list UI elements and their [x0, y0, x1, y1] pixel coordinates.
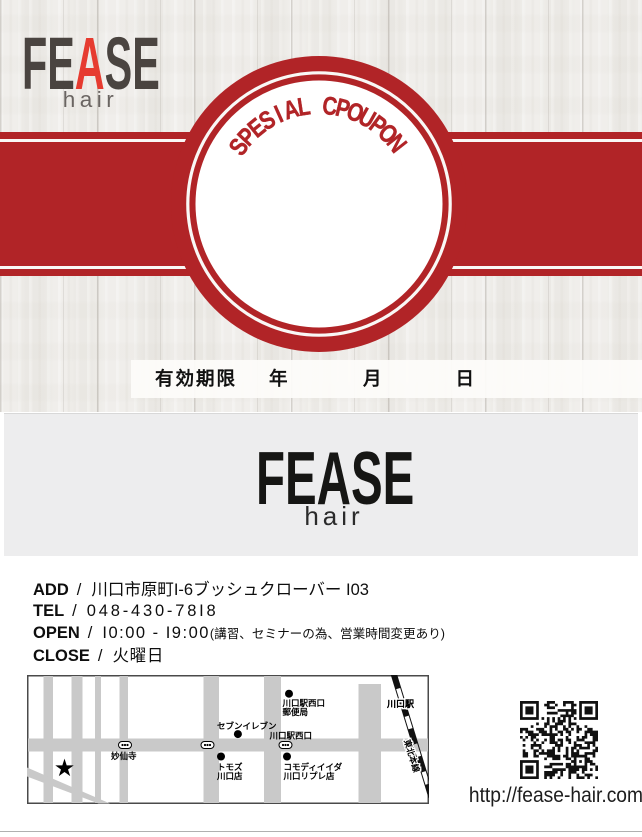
svg-text:川口リプレ店: 川口リプレ店 — [282, 771, 335, 781]
svg-text:郵便局: 郵便局 — [282, 707, 308, 717]
svg-text:★: ★ — [53, 755, 75, 782]
svg-text:川口店: 川口店 — [216, 771, 243, 781]
svg-text:妙仙寺: 妙仙寺 — [111, 751, 137, 761]
svg-text:セブンイレブン: セブンイレブン — [217, 721, 277, 731]
svg-text:川口駅: 川口駅 — [386, 699, 415, 709]
svg-text:川口駅西口: 川口駅西口 — [268, 731, 312, 741]
